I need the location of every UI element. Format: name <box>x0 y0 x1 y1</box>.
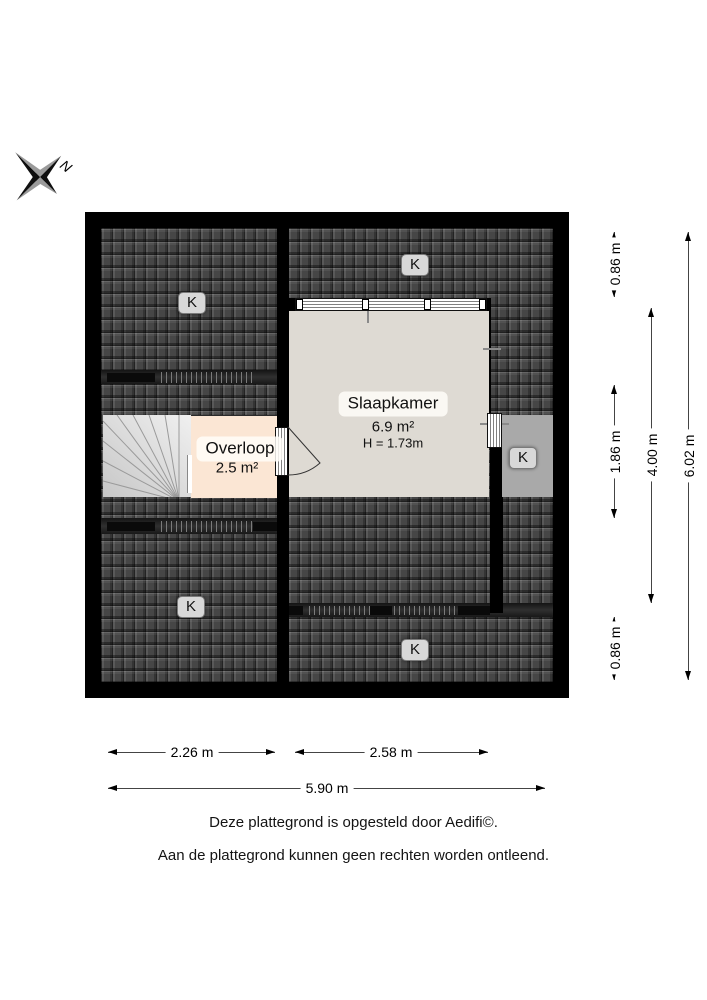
side-window <box>487 413 502 448</box>
roof-k-badge: K <box>401 254 429 276</box>
dimension-label: 4.00 m <box>644 429 660 482</box>
footer-credit: Deze plattegrond is opgesteld door Aedif… <box>0 814 707 831</box>
footer-disclaimer: Aan de plattegrond kunnen geen rechten w… <box>0 847 707 864</box>
room-name-label: Slaapkamer <box>339 392 448 417</box>
dimension-label: 2.58 m <box>365 744 418 760</box>
wall-tick <box>367 311 369 323</box>
roof-k-badge: K <box>401 639 429 661</box>
floorplan-page: N <box>0 0 707 1000</box>
floor-plan: K K K K K Slaapkamer 6.9 m² H = 1.73m Ov… <box>85 212 569 698</box>
stair-railing <box>187 455 192 493</box>
north-label: N <box>57 157 76 176</box>
door-swing-icon <box>287 426 341 496</box>
dimension-label: 5.90 m <box>301 780 354 796</box>
roof-seam <box>101 370 277 384</box>
roof-k-badge: K <box>178 292 206 314</box>
bedroom-window <box>295 298 487 311</box>
stairs <box>103 415 192 497</box>
room-area-label: 2.5 m² <box>216 460 259 477</box>
room-height-label: H = 1.73m <box>363 436 423 451</box>
roof-area: K K K K K Slaapkamer 6.9 m² H = 1.73m Ov… <box>101 228 553 682</box>
dimension-label: 1.86 m <box>607 426 623 479</box>
wall-tick <box>483 348 501 350</box>
dimension-label: 0.86 m <box>607 622 623 675</box>
dimension-label: 0.86 m <box>607 238 623 291</box>
dimension-label: 2.26 m <box>166 744 219 760</box>
compass-rose-icon: N <box>5 125 87 215</box>
room-name-label: Overloop <box>197 437 284 462</box>
roof-seam <box>101 518 277 534</box>
room-area-label: 6.9 m² <box>372 419 415 436</box>
roof-seam <box>289 603 553 617</box>
roof-k-badge: K <box>177 596 205 618</box>
dimension-label: 6.02 m <box>681 430 697 483</box>
roof-k-badge: K <box>509 447 537 469</box>
